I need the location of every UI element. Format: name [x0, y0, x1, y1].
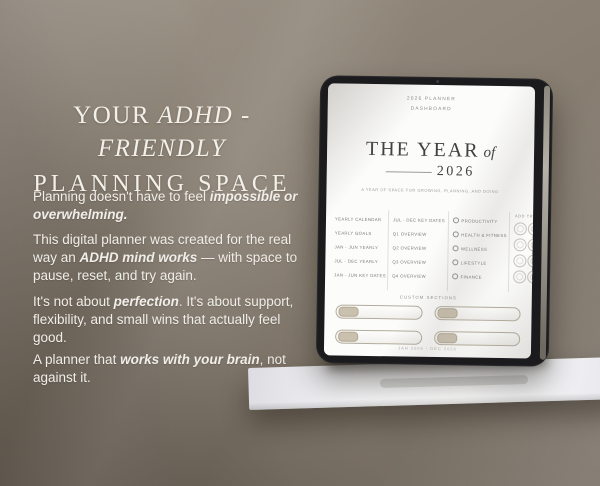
- pill-tab-cap: [437, 308, 457, 318]
- planner-nav-link[interactable]: YEARLY GOALS: [335, 225, 385, 240]
- pill-tab-cap: [338, 307, 358, 317]
- marketing-copy: YOUR ADHD - FRIENDLY PLANNING SPACE Plan…: [0, 0, 320, 486]
- planner-nav-link[interactable]: JAN - JUN YEARLY: [334, 239, 384, 254]
- planner-nav-link[interactable]: JAN - JUN KEY DATES: [334, 267, 384, 282]
- trackers-column: ADD TRACKERS: [508, 212, 535, 293]
- nav-column-2: JUL - DEC KEY DATESQ1 OVERVIEWQ2 OVERVIE…: [387, 210, 448, 291]
- trackers-header: ADD TRACKERS: [514, 214, 535, 219]
- custom-sections-grid: [335, 304, 521, 346]
- planner-nav-link[interactable]: JUL - DEC YEARLY: [334, 253, 384, 268]
- planner-nav-link[interactable]: JUL - DEC KEY DATES: [393, 212, 445, 227]
- category-label: PRODUCTIVITY: [461, 218, 497, 224]
- intro-paragraph: Planning doesn't have to feel impossible…: [33, 188, 305, 224]
- support-paragraph: It's not about perfection. It's about su…: [33, 293, 305, 346]
- year-title: THE YEAR of 2026: [327, 137, 535, 181]
- tracker-circle[interactable]: [527, 254, 535, 267]
- planner-header-line2: DASHBOARD: [328, 103, 535, 116]
- tracker-circle[interactable]: [528, 222, 535, 235]
- custom-section-pill[interactable]: [434, 331, 521, 346]
- tracker-grid: [513, 222, 535, 284]
- finance-icon: [452, 273, 458, 279]
- planner-tagline: A YEAR OF SPACE FOR GROWING, PLANNING, A…: [326, 186, 533, 194]
- wellness-icon: [452, 245, 458, 251]
- tracker-circle[interactable]: [527, 238, 535, 251]
- title-divider-line: [386, 171, 432, 173]
- year-title-main: THE YEAR: [366, 138, 480, 162]
- text-segment: A planner that: [33, 352, 120, 367]
- tracker-circle[interactable]: [527, 270, 535, 283]
- text-segment: It's not about: [33, 294, 114, 309]
- text-segment: Planning doesn't have to feel: [33, 189, 210, 204]
- nav-column-categories: PRODUCTIVITYHEALTH & FITNESSWELLNESSLIFE…: [447, 211, 509, 292]
- text-segment: perfection: [114, 294, 179, 309]
- productivity-icon: [453, 217, 459, 223]
- custom-section-pill[interactable]: [434, 306, 521, 321]
- nav-column-1: YEARLY CALENDARYEARLY GOALSJAN - JUN YEA…: [330, 209, 388, 290]
- tablet-side-edge: [540, 86, 550, 360]
- planner-header: 2026 PLANNER DASHBOARD: [328, 93, 535, 115]
- planner-nav-link[interactable]: YEARLY CALENDAR: [335, 211, 385, 226]
- tracker-circle[interactable]: [513, 254, 526, 267]
- custom-section-pill[interactable]: [335, 329, 422, 344]
- health-fitness-icon: [453, 231, 459, 237]
- tracker-circle[interactable]: [513, 238, 526, 251]
- description-paragraph: This digital planner was created for the…: [33, 231, 305, 284]
- planner-nav-link[interactable]: Q2 OVERVIEW: [392, 240, 444, 255]
- year-number: 2026: [437, 164, 475, 181]
- planner-screen: 2026 PLANNER DASHBOARD THE YEAR of 2026 …: [324, 83, 535, 358]
- planner-category-link[interactable]: LIFESTYLE: [452, 255, 505, 270]
- text-segment: works with your brain: [120, 352, 260, 367]
- category-label: LIFESTYLE: [461, 260, 487, 265]
- category-label: WELLNESS: [461, 246, 487, 251]
- custom-section-pill[interactable]: [335, 304, 422, 319]
- page-title: YOUR ADHD - FRIENDLY PLANNING SPACE: [18, 100, 306, 198]
- tracker-circle[interactable]: [513, 270, 526, 283]
- category-label: FINANCE: [461, 274, 482, 279]
- pill-tab-cap: [437, 333, 457, 343]
- planner-category-link[interactable]: HEALTH & FITNESS: [453, 227, 506, 242]
- text-segment: ADHD mind works: [80, 250, 198, 265]
- text-segment: YOUR: [73, 102, 158, 129]
- custom-sections-header: CUSTOM SECTIONS: [325, 293, 532, 301]
- year-title-of: of: [483, 145, 495, 161]
- planner-category-link[interactable]: WELLNESS: [452, 241, 505, 256]
- planner-category-link[interactable]: PRODUCTIVITY: [453, 213, 506, 228]
- promo-canvas: YOUR ADHD - FRIENDLY PLANNING SPACE Plan…: [0, 0, 600, 486]
- tracker-circle[interactable]: [514, 222, 527, 235]
- pill-tab-cap: [338, 332, 358, 342]
- heading-line1: YOUR ADHD - FRIENDLY: [18, 100, 306, 165]
- planner-nav-link[interactable]: Q4 OVERVIEW: [392, 268, 444, 283]
- planner-category-link[interactable]: FINANCE: [452, 269, 505, 284]
- tablet-device: 2026 PLANNER DASHBOARD THE YEAR of 2026 …: [316, 75, 553, 367]
- category-label: HEALTH & FITNESS: [461, 232, 507, 238]
- lifestyle-icon: [452, 259, 458, 265]
- planner-nav-link[interactable]: Q3 OVERVIEW: [392, 254, 444, 269]
- front-camera-icon: [436, 80, 439, 83]
- planner-nav-table: YEARLY CALENDARYEARLY GOALSJAN - JUN YEA…: [330, 209, 528, 292]
- planner-nav-link[interactable]: Q1 OVERVIEW: [393, 226, 445, 241]
